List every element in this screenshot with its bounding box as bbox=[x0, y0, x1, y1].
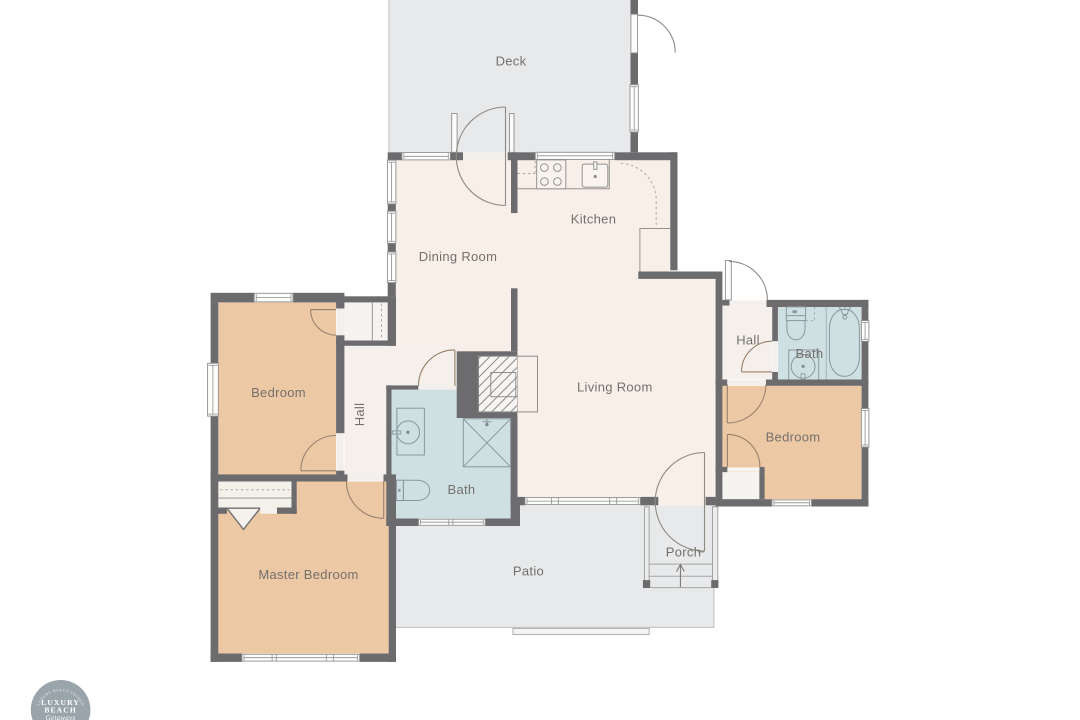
svg-text:Deck: Deck bbox=[496, 54, 527, 69]
svg-text:Dining Room: Dining Room bbox=[419, 249, 497, 264]
svg-text:Patio: Patio bbox=[513, 564, 544, 579]
svg-text:Kitchen: Kitchen bbox=[571, 212, 616, 227]
svg-text:Bedroom: Bedroom bbox=[251, 385, 306, 400]
svg-text:Porch: Porch bbox=[666, 545, 701, 560]
svg-text:Hall: Hall bbox=[352, 403, 367, 427]
svg-text:Hall: Hall bbox=[736, 333, 760, 348]
svg-text:Bedroom: Bedroom bbox=[766, 430, 821, 445]
svg-text:Bath: Bath bbox=[448, 482, 476, 497]
svg-text:Living Room: Living Room bbox=[577, 380, 653, 395]
svg-text:Master Bedroom: Master Bedroom bbox=[258, 567, 358, 582]
svg-text:Bath: Bath bbox=[796, 346, 824, 361]
svg-text:Getaways: Getaways bbox=[46, 714, 76, 720]
